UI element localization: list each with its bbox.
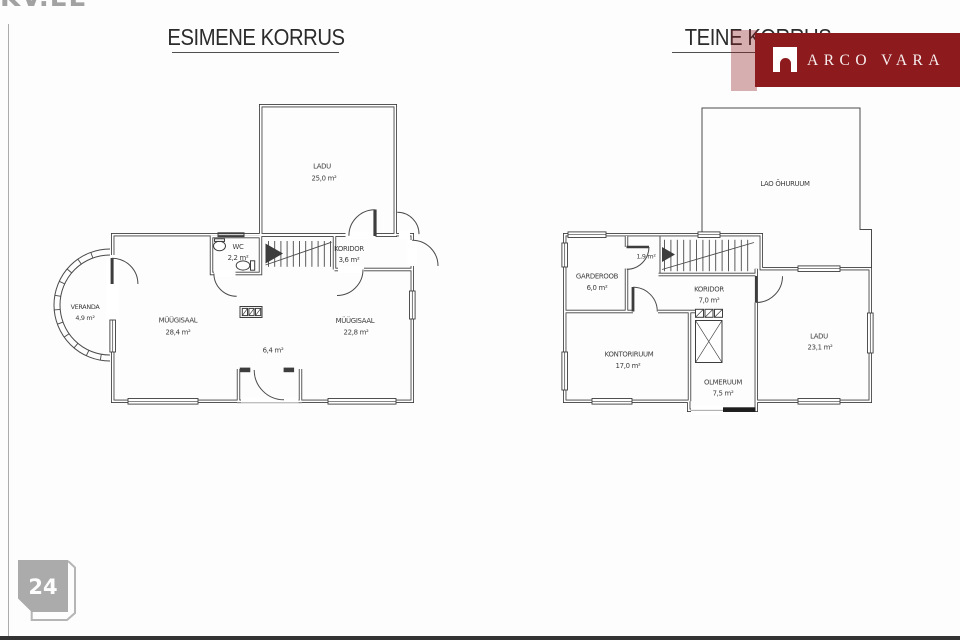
bottom-bar (0, 636, 960, 640)
room-area: 17,0 m² (616, 362, 641, 370)
room-label: MÜÜGISAAL (159, 316, 198, 325)
room-label: LADU (810, 333, 828, 341)
room-area: 1,9 m² (636, 253, 656, 261)
room-label: LAO ÕHURUUM (760, 179, 810, 188)
room-area: 22,8 m² (344, 329, 369, 337)
room-label: VERANDA (71, 303, 101, 311)
room-area: 7,5 m² (713, 390, 734, 398)
room-label: KORIDOR (334, 245, 364, 253)
floor-plan-sheet: KV.EE ESIMENE KORRUS TEINE KORRUS ARCO V… (0, 0, 960, 640)
stairs (266, 241, 332, 267)
room-labels: LAO ÕHURUUM GARDEROOB 6,0 m² 1,9 m² KORI… (576, 179, 833, 398)
room-label: WC (232, 243, 244, 251)
room-label: KORIDOR (694, 286, 724, 294)
room-area: 23,1 m² (808, 344, 833, 352)
shaft-symbols (696, 309, 723, 362)
walls (113, 106, 413, 402)
kv-ee-watermark: KV.EE (0, 0, 130, 11)
stairs (662, 240, 754, 271)
banner-pink-strip (731, 30, 757, 91)
page-number: 24 (28, 575, 57, 599)
room-area: 28,4 m² (166, 329, 191, 337)
first-floor-title-underline (172, 52, 339, 53)
room-area: 6,0 m² (587, 284, 608, 292)
room-label: GARDEROOB (576, 273, 619, 281)
page-number-badge: 24 (14, 556, 84, 626)
floor-plan-second: LAO ÕHURUUM GARDEROOB 6,0 m² 1,9 m² KORI… (550, 88, 900, 433)
first-floor-title: ESIMENE KORRUS (164, 24, 349, 51)
balcony-threshold (691, 406, 756, 416)
brand-name: ARCO VARA (807, 33, 945, 87)
room-area: 2,2 m² (228, 254, 249, 262)
room-label: OLMERUUM (704, 379, 742, 387)
arco-vara-banner: ARCO VARA (755, 33, 960, 87)
room-area: 7,0 m² (699, 297, 720, 305)
floor-plan-first: LADU 25,0 m² WC 2,2 m² KORIDOR 3,6 m² VE… (40, 88, 450, 433)
room-label: MÜÜGISAAL (336, 316, 375, 325)
room-label: LADU (313, 163, 331, 171)
arch-icon (773, 47, 797, 72)
room-label: KONTORIRUUM (605, 351, 654, 359)
room-area: 6,4 m² (263, 347, 284, 355)
room-area: 25,0 m² (312, 175, 337, 183)
left-edge-rule (8, 24, 9, 637)
room-area: 4,9 m² (75, 314, 95, 322)
meter-panel (240, 307, 262, 318)
doors (111, 210, 438, 403)
room-area: 3,6 m² (339, 256, 360, 264)
watermark-text: KV.EE (0, 0, 130, 11)
